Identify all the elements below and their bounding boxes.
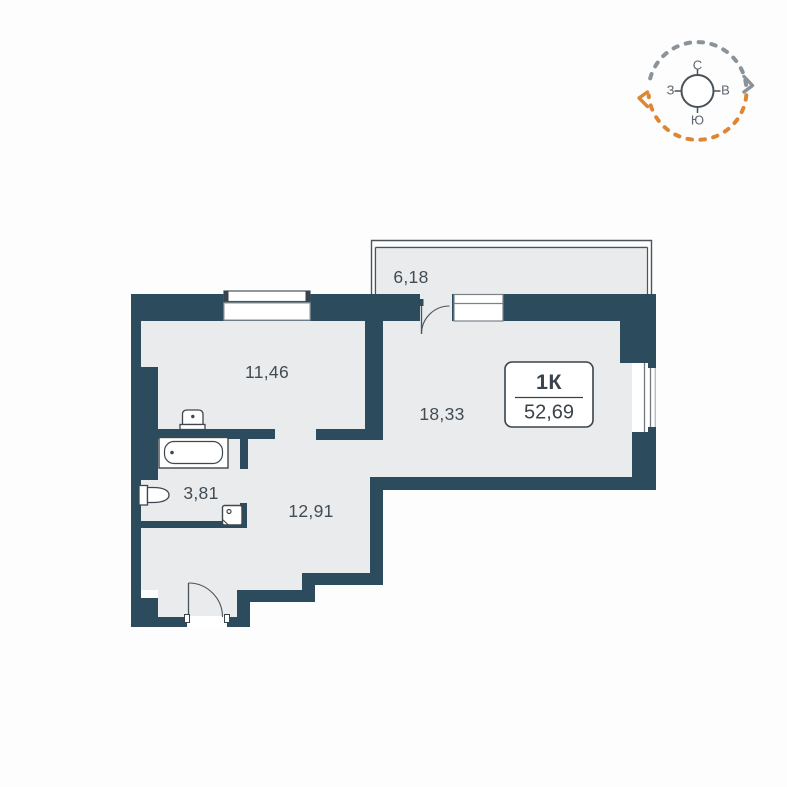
floor-plan-page: 6,18 11,46 18,33 3,81 12,91 1К 52,69 С Ю… <box>0 0 787 787</box>
bathtub-icon <box>159 438 228 469</box>
compass-south-label: Ю <box>691 113 704 128</box>
right-window-icon <box>632 363 656 432</box>
wall-living-bottom <box>370 477 656 490</box>
apartment-label-box: 1К 52,69 <box>505 362 593 427</box>
wall-top <box>131 294 656 321</box>
wall-step-2h <box>302 573 372 585</box>
wall-hallway-right <box>370 477 383 585</box>
compass-circle <box>682 75 714 107</box>
washing-machine-icon <box>223 506 243 526</box>
kitchen-window-icon <box>224 291 310 320</box>
balcony-window-icon <box>454 295 503 322</box>
room-label-hallway: 12,91 <box>288 501 333 521</box>
room-label-bathroom: 3,81 <box>183 483 218 503</box>
room-label-balcony: 6,18 <box>393 267 428 287</box>
compass: С Ю З В <box>639 42 753 140</box>
wall-right-pilaster <box>620 321 632 363</box>
wall-left-pilaster <box>131 367 158 480</box>
compass-west-label: З <box>667 83 675 98</box>
floor-hallway-lower <box>141 529 302 590</box>
floor-entrance <box>158 590 237 617</box>
compass-east-label: В <box>721 83 730 98</box>
apartment-type: 1К <box>536 370 562 394</box>
wall-corner-bottom-left <box>131 598 158 627</box>
floor-plan-svg: 6,18 11,46 18,33 3,81 12,91 1К 52,69 С Ю… <box>0 0 787 787</box>
wall-bathtub-stub <box>240 437 248 469</box>
compass-south-arrow-icon <box>639 92 648 107</box>
apartment-total-area: 52,69 <box>524 402 574 424</box>
room-label-living-room: 18,33 <box>419 404 464 424</box>
wall-divider <box>365 294 383 433</box>
wall-stub-hall <box>316 429 383 440</box>
compass-north-label: С <box>693 58 702 73</box>
room-label-kitchen: 11,46 <box>245 362 289 382</box>
kitchen-sink-icon <box>180 410 205 430</box>
